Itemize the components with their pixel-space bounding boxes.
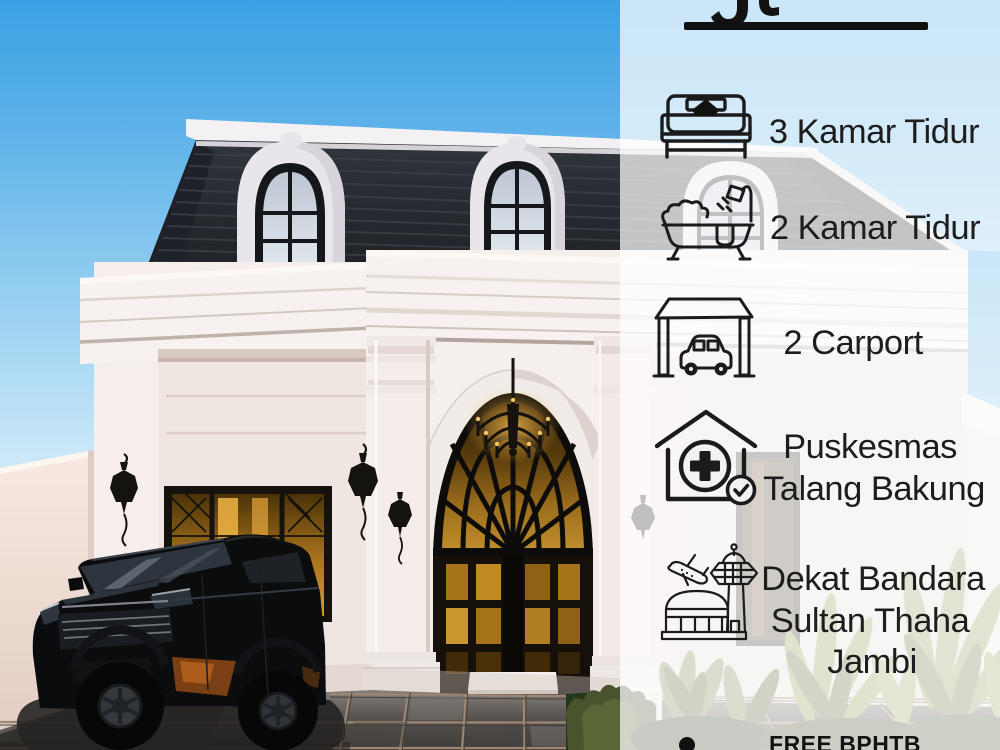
svg-text:2 Kamar Tidur: 2 Kamar Tidur [770,209,980,247]
svg-text:Talang Bakung: Talang Bakung [763,470,985,508]
svg-text:Puskesmas: Puskesmas [783,428,957,466]
svg-text:Jambi: Jambi [827,643,917,681]
svg-text:Sultan Thaha: Sultan Thaha [771,602,971,640]
svg-text:2 Carport: 2 Carport [783,324,923,362]
svg-text:Dekat Bandara: Dekat Bandara [761,560,986,598]
svg-text:FREE BPHTB: FREE BPHTB [769,731,921,750]
svg-text:3 Kamar Tidur: 3 Kamar Tidur [769,113,979,151]
